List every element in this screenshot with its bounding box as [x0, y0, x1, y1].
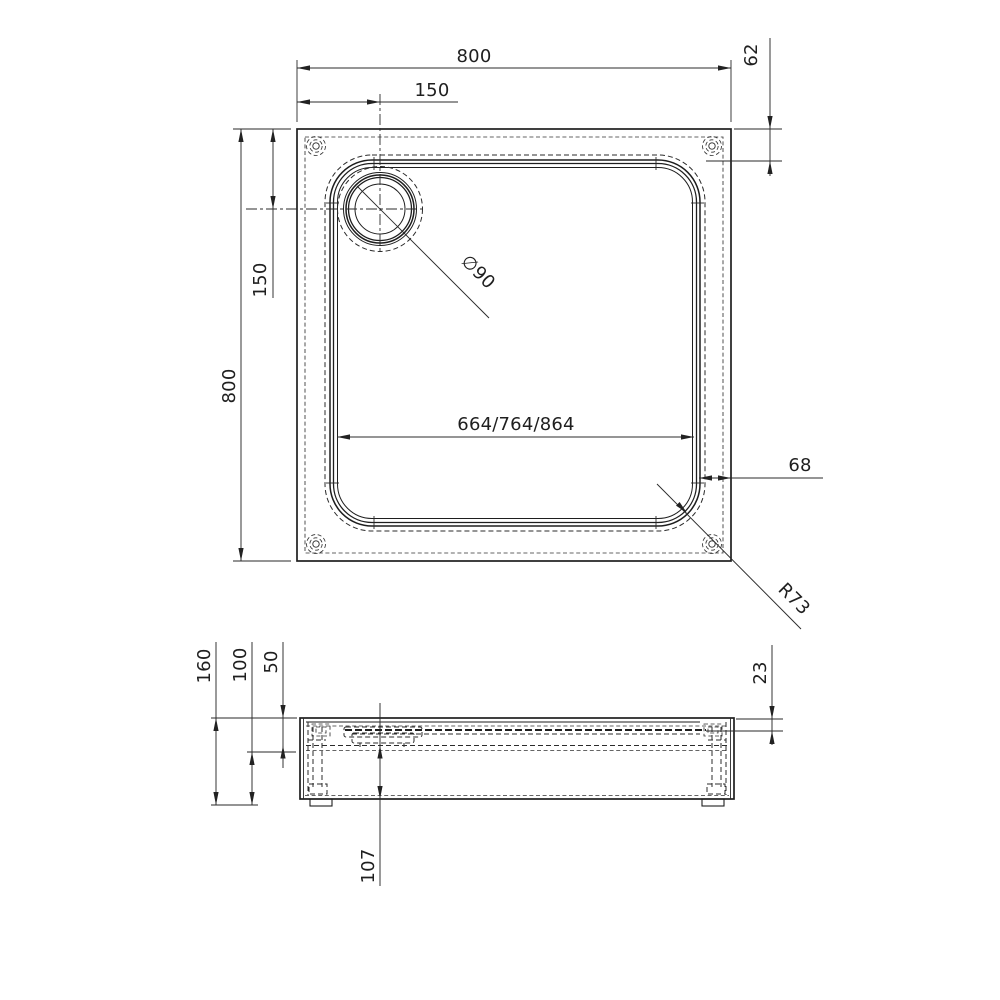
rim-height-label: 50: [261, 650, 282, 673]
tray-hidden-inner-outline: [305, 137, 723, 553]
outer-height-label: 800: [219, 369, 240, 404]
corner-boss-top-left: [307, 137, 326, 156]
right-leg: [702, 722, 726, 806]
dimension-rim-clearance: 62: [706, 38, 782, 176]
dimension-drain-offset-x: 150: [297, 80, 458, 105]
dimension-edge-gap: 68: [699, 455, 823, 481]
hidden-structure-lines: [305, 726, 729, 796]
right-foot: [702, 799, 724, 806]
outer-width-label: 800: [457, 46, 492, 67]
dimension-outer-width: 800: [297, 46, 731, 122]
drain-clearance-label: 107: [358, 849, 379, 884]
dimension-basin-depth: 23: [706, 645, 783, 745]
drain-diameter-label: ∅90: [457, 251, 500, 294]
total-height-label: 160: [194, 649, 215, 684]
dimension-inner-width: 664/764/864: [337, 414, 694, 440]
side-view: 160 100 50 23: [194, 642, 783, 886]
rim-clearance-label: 62: [741, 43, 762, 66]
dimension-rim-height: 50: [261, 642, 286, 768]
left-foot: [310, 799, 332, 806]
corner-boss-bottom-left: [307, 535, 326, 554]
drain-offset-x-label: 150: [415, 80, 450, 101]
tray-outer-outline: [297, 129, 731, 561]
base-height-label: 100: [230, 648, 251, 683]
corner-boss-top-right: [703, 137, 722, 156]
dimension-drain-offset-y: 150: [250, 129, 276, 298]
drain-offset-y-label: 150: [250, 263, 271, 298]
dimension-outer-height: 800: [219, 129, 291, 561]
tangent-ticks: [326, 157, 704, 529]
corner-radius-dimension: R73: [657, 484, 814, 629]
inner-width-label: 664/764/864: [457, 414, 574, 435]
basin-depth-label: 23: [750, 661, 771, 684]
corner-boss-bottom-right: [703, 535, 722, 554]
drain-diameter-dimension: ∅90: [357, 186, 499, 318]
corner-radius-label: R73: [774, 579, 814, 619]
edge-gap-label: 68: [788, 455, 811, 476]
shower-tray-technical-drawing: ∅90 R73 800 150: [0, 0, 1000, 1000]
top-view: ∅90 R73 800 150: [219, 38, 823, 629]
left-leg: [308, 722, 332, 806]
